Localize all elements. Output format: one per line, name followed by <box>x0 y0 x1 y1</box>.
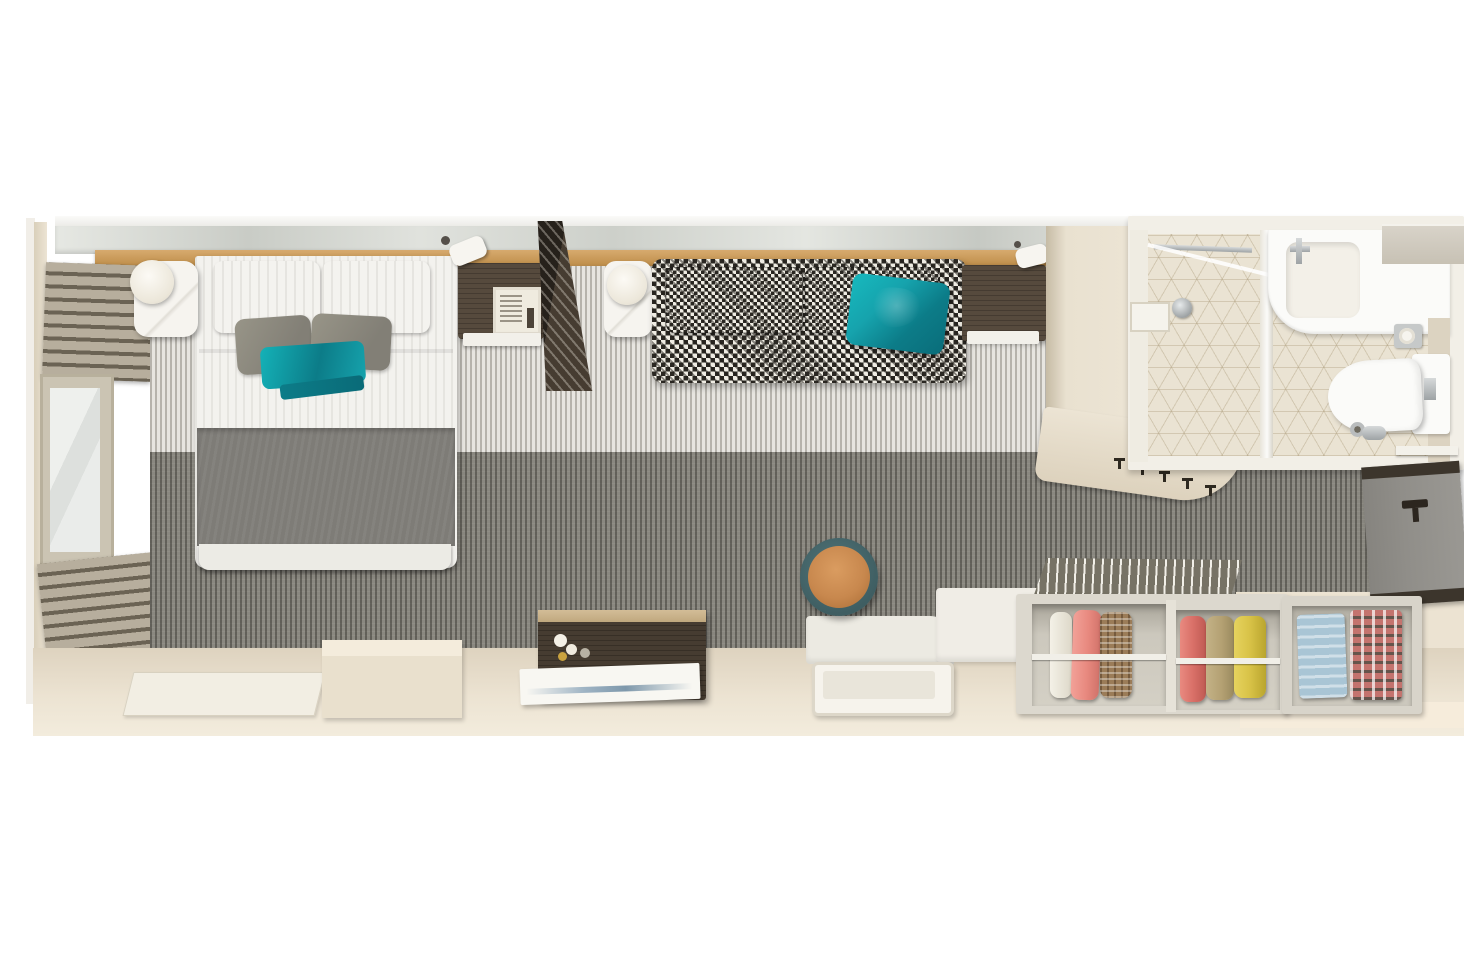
towel-bar <box>1396 446 1458 455</box>
desk-ledge <box>463 333 541 346</box>
flush-plate <box>1424 378 1436 400</box>
dresser-top-edge <box>538 610 706 622</box>
decor-gold-accent <box>558 652 567 661</box>
closet-divider <box>1166 600 1176 712</box>
minibar-cabinet <box>1361 461 1464 607</box>
ceiling-mount-dot-1 <box>441 236 450 245</box>
hanging-garment-yellow <box>1234 616 1266 698</box>
magazine-cover-art <box>526 683 692 695</box>
picture-detail <box>527 308 534 328</box>
side-table-ledge <box>967 331 1039 344</box>
sofa-teal-throw <box>845 272 951 355</box>
vanity-tray-inner <box>823 671 935 699</box>
minibar-handle-hook <box>1412 508 1419 522</box>
window-glass <box>50 388 100 552</box>
bidet-tap <box>1362 426 1386 440</box>
bathroom-left-wall <box>1130 230 1148 462</box>
bathroom-window-slot <box>1130 302 1170 332</box>
folded-clothes-blue <box>1297 613 1348 699</box>
cabin-render <box>0 0 1464 976</box>
shower-head <box>1172 298 1192 318</box>
closet-rail-right <box>1176 658 1280 664</box>
magazine <box>519 663 700 705</box>
cabin-window <box>40 374 114 566</box>
framed-picture <box>493 287 541 335</box>
ceiling-mount-dot-2 <box>1014 241 1021 248</box>
vanity-panel-low <box>806 616 954 664</box>
coat-hook <box>1209 485 1212 496</box>
decor-flower <box>566 644 577 655</box>
stool-leather-top <box>808 546 870 608</box>
sofa-side-table <box>962 265 1046 341</box>
coat-hook <box>1163 471 1166 482</box>
dresser-knob <box>580 648 590 658</box>
bench-box <box>322 640 462 718</box>
closet-rail-left <box>1032 654 1166 660</box>
toilet-paper-roll <box>1399 328 1415 344</box>
floor-table-panel <box>123 672 326 716</box>
coat-hook <box>1186 478 1189 489</box>
picture-art <box>500 294 522 322</box>
decor-flower <box>554 634 567 647</box>
bed-gray-blanket <box>197 428 455 546</box>
toilet-paper-holder <box>1394 324 1422 348</box>
stool <box>800 538 878 616</box>
sofa-cushion-left <box>666 267 803 333</box>
bed-foot-band <box>199 544 451 570</box>
mirror-cabinet <box>1382 224 1464 264</box>
vanity-tray <box>812 662 954 716</box>
table-lamp-left <box>130 260 174 304</box>
sink-faucet-stem <box>1296 238 1302 264</box>
throw-fold-highlight <box>866 284 922 330</box>
bench-box-top <box>322 640 462 656</box>
coat-hook <box>1118 458 1121 469</box>
table-lamp-right <box>607 265 647 305</box>
folded-clothes-plaid <box>1350 610 1402 700</box>
